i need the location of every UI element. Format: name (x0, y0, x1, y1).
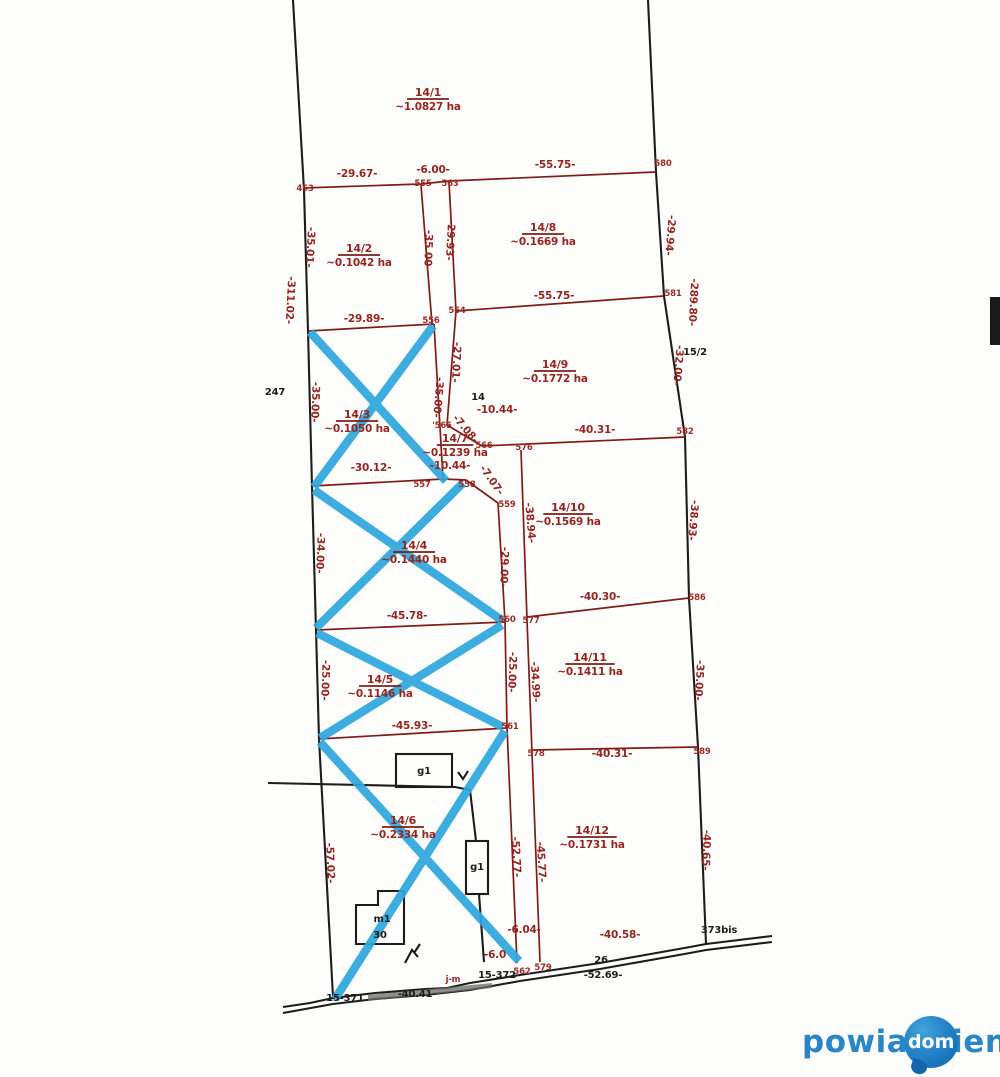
parcel-label: 14/10~0.1569 ha (535, 501, 601, 528)
map-name-label: 14 (471, 392, 485, 403)
measurement-label: -311.02- (283, 276, 297, 324)
watermark-text-right: ieni (952, 1024, 1000, 1060)
survey-point-number: 562 (513, 967, 530, 977)
parcel-area: ~0.1569 ha (535, 516, 601, 528)
tree-symbol (405, 944, 420, 963)
parcel-label: 14/8~0.1669 ha (510, 221, 576, 248)
survey-point-number: 564 (448, 306, 465, 316)
right-boundary (648, 0, 706, 944)
survey-line (316, 622, 505, 630)
map-name-label: g1 (470, 862, 484, 873)
parcel-area: ~0.1731 ha (559, 839, 625, 851)
measurement-label: -40.30- (580, 591, 621, 603)
measurement-label: -289.80- (686, 278, 700, 326)
measurement-label: -55.75- (534, 290, 575, 302)
cadastral-map-canvas: -29.67--6.00--55.75--55.75--29.89--30.12… (0, 0, 1000, 1077)
parcel-number: 14/3 (344, 408, 370, 421)
survey-point-number: 556 (422, 316, 439, 326)
survey-point-number: 559 (498, 500, 515, 510)
measurement-label: -57.02- (323, 842, 336, 883)
parcel-number: 14/12 (575, 824, 609, 837)
measurement-label: -27.01- (449, 342, 463, 383)
parcel-label: 14/9~0.1772 ha (522, 358, 588, 385)
map-name-label: -40.41- (398, 989, 437, 1000)
scan-artifact (990, 297, 1000, 345)
parcel-area: ~0.2334 ha (370, 829, 436, 841)
parcel-number: 14/8 (530, 221, 556, 234)
parcel-number: 14/9 (542, 358, 568, 371)
measurement-label: -45.78- (387, 610, 428, 622)
measurement-label: -29.94- (662, 215, 677, 256)
parcel-label: 14/11~0.1411 ha (557, 651, 623, 678)
parcel-label: 14/1~1.0827 ha (395, 86, 461, 113)
survey-point-number: '565 (432, 421, 452, 431)
survey-point-number: 589 (693, 747, 710, 757)
parcel-area: ~0.1239 ha (422, 447, 488, 459)
parcel-area: ~0.1050 ha (324, 423, 390, 435)
label-layer: -29.67--6.00--55.75--55.75--29.89--30.12… (265, 159, 737, 1004)
map-name-label: 30 (373, 930, 387, 941)
parcel-number: 14/10 (551, 501, 585, 514)
measurement-label: -34.99- (528, 661, 542, 702)
map-name-label: 15-371 (326, 993, 364, 1004)
measurement-label: -35.00- (692, 660, 706, 701)
parcel-area: ~0.1411 ha (557, 666, 623, 678)
parcel-number: 14/6 (390, 814, 417, 827)
measurement-label: -35.01- (303, 227, 317, 268)
watermark-text-left: powia (802, 1024, 908, 1060)
measurement-label: -40.31- (575, 424, 616, 436)
map-name-label: g1 (417, 766, 431, 777)
measurement-label: -10.44- (430, 460, 471, 472)
measurement-label: -55.75- (535, 159, 576, 171)
map-name-label: 15-372 (478, 970, 516, 981)
measurement-label: -35.00- (421, 230, 434, 271)
parcel-number: 14/11 (573, 651, 607, 664)
parcel-area: ~0.1146 ha (347, 688, 413, 700)
survey-point-number: 558 (458, 480, 475, 490)
parcel-label: 14/6~0.2334 ha (370, 814, 436, 841)
parcel-area: ~0.1772 ha (522, 373, 588, 385)
watermark-bubble-text: dom (908, 1031, 954, 1053)
measurement-label: -40.58- (600, 929, 641, 941)
measurement-label: -6.0 (484, 949, 506, 961)
survey-point-number: 577 (522, 616, 539, 626)
parcel-area: ~1.0827 ha (395, 101, 461, 113)
survey-point-number: 453 (296, 184, 313, 194)
measurement-label: -29.00- (497, 547, 510, 588)
measurement-label: -34.00- (313, 533, 326, 574)
survey-point-number: 557 (413, 480, 430, 490)
measurement-label: -7.07- (477, 463, 506, 497)
survey-point-number: 579 (534, 963, 551, 973)
measurement-label: -40.31- (592, 748, 633, 760)
parcel-number: 14/2 (346, 242, 372, 255)
parcel-number: 14/7 (442, 432, 468, 445)
measurement-label: -35.00- (308, 382, 321, 423)
survey-point-number: 586 (688, 593, 705, 603)
map-name-label: 373bis (701, 925, 737, 936)
survey-point-number: 555 (414, 179, 431, 189)
parcel-number: 14/4 (401, 539, 428, 552)
parcel-area: ~0.1440 ha (381, 554, 447, 566)
measurement-label: -52.77- (509, 836, 523, 877)
measurement-label: -29.89- (344, 313, 385, 325)
measurement-label: -25.00- (318, 660, 331, 701)
survey-point-number: 563 (441, 179, 458, 189)
parcel-number: 14/1 (415, 86, 441, 99)
measurement-label: -6.04- (507, 924, 540, 936)
measurement-label: -6.00- (416, 164, 449, 176)
survey-point-number: 578 (527, 749, 544, 759)
measurement-label: -35.00- (430, 377, 445, 418)
survey-point-number: 561 (501, 722, 518, 732)
survey-point-number: 580 (654, 159, 671, 169)
measurement-label: -29.67- (337, 168, 378, 180)
measurement-label: -29.93- (443, 220, 457, 261)
measurement-label: -10.44- (477, 404, 518, 416)
measurement-label: -30.12- (351, 462, 392, 474)
watermark-speech-bubble-icon: dom (904, 1016, 958, 1068)
map-name-label: 247 (265, 387, 286, 398)
parcel-area: ~0.1042 ha (326, 257, 392, 269)
parcel-label: 14/12~0.1731 ha (559, 824, 625, 851)
survey-line (308, 324, 434, 331)
map-name-label: 15/2 (683, 347, 707, 358)
parcel-number: 14/5 (367, 673, 393, 686)
measurement-label: -25.00- (505, 652, 518, 693)
parcel-label: 14/2~0.1042 ha (326, 242, 392, 269)
watermark-logo: powia dom ieni (802, 1014, 1000, 1070)
map-name-label: m1 (374, 914, 391, 925)
survey-point-number: 560 (498, 615, 515, 625)
parcel-area: ~0.1669 ha (510, 236, 576, 248)
measurement-label: -45.93- (392, 720, 433, 732)
survey-point-number: 582 (676, 427, 693, 437)
check-symbol (458, 771, 468, 779)
map-name-label: -52.69- (584, 970, 623, 981)
measurement-label: -45.77- (534, 841, 548, 882)
survey-point-number: j-m (445, 975, 461, 985)
map-name-label: 26 (594, 955, 608, 966)
measurement-label: -40.65- (699, 830, 712, 871)
survey-point-number: 581 (664, 289, 681, 299)
survey-point-number: 576 (515, 443, 532, 453)
